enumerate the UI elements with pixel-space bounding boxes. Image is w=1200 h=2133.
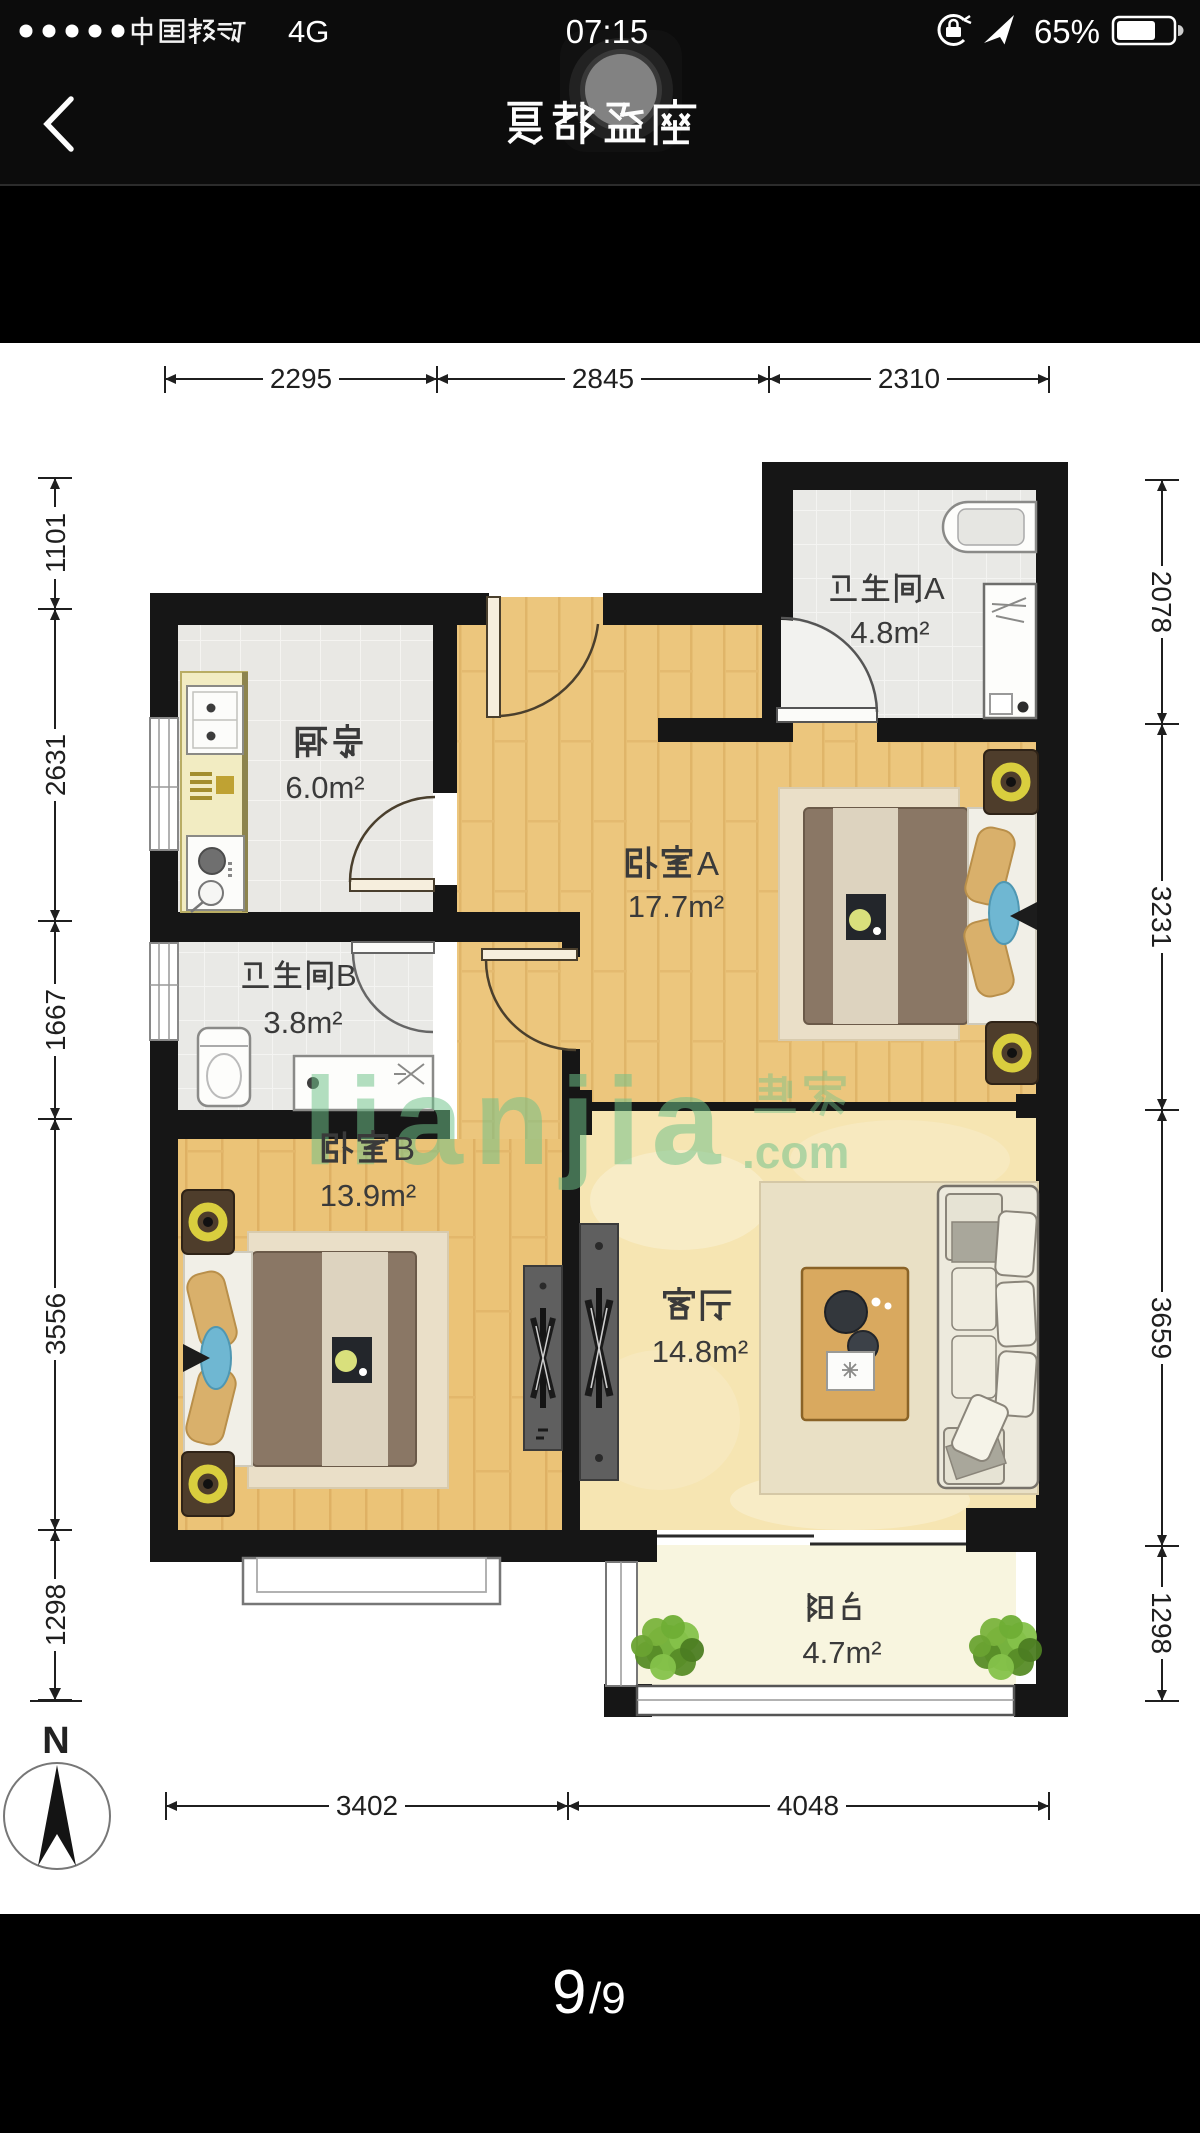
svg-text:/9: /9 bbox=[589, 1974, 626, 2023]
svg-text:2631: 2631 bbox=[40, 734, 71, 796]
svg-text:3556: 3556 bbox=[40, 1293, 71, 1355]
svg-text:1298: 1298 bbox=[40, 1584, 71, 1646]
svg-text:1101: 1101 bbox=[40, 513, 71, 573]
svg-text:1298: 1298 bbox=[1146, 1592, 1177, 1654]
svg-text:2078: 2078 bbox=[1146, 571, 1177, 633]
svg-text:13.9m²: 13.9m² bbox=[320, 1178, 416, 1213]
svg-text:4.7m²: 4.7m² bbox=[802, 1635, 881, 1670]
svg-text:lianjia: lianjia bbox=[303, 1053, 731, 1191]
svg-text:07:15: 07:15 bbox=[566, 13, 649, 50]
svg-text:4G: 4G bbox=[288, 14, 329, 49]
svg-text:1667: 1667 bbox=[40, 989, 71, 1051]
svg-text:3659: 3659 bbox=[1146, 1297, 1177, 1359]
svg-text:14.8m²: 14.8m² bbox=[652, 1334, 748, 1369]
svg-text:2845: 2845 bbox=[572, 363, 634, 394]
svg-text:65%: 65% bbox=[1034, 13, 1100, 50]
svg-text:17.7m²: 17.7m² bbox=[628, 889, 724, 924]
svg-text:A: A bbox=[697, 845, 719, 882]
svg-text:A: A bbox=[924, 571, 945, 606]
svg-text:.com: .com bbox=[742, 1126, 849, 1178]
svg-text:2310: 2310 bbox=[878, 363, 940, 394]
svg-text:3.8m²: 3.8m² bbox=[263, 1005, 342, 1040]
svg-text:B: B bbox=[336, 958, 357, 993]
svg-text:6.0m²: 6.0m² bbox=[285, 770, 364, 805]
svg-text:B: B bbox=[393, 1130, 415, 1167]
svg-text:9: 9 bbox=[552, 1958, 586, 2027]
svg-text:2295: 2295 bbox=[270, 363, 332, 394]
svg-text:N: N bbox=[42, 1720, 69, 1762]
svg-text:4.8m²: 4.8m² bbox=[850, 615, 929, 650]
svg-text:3402: 3402 bbox=[336, 1790, 398, 1821]
svg-text:4048: 4048 bbox=[777, 1790, 839, 1821]
svg-text:3231: 3231 bbox=[1146, 886, 1177, 948]
